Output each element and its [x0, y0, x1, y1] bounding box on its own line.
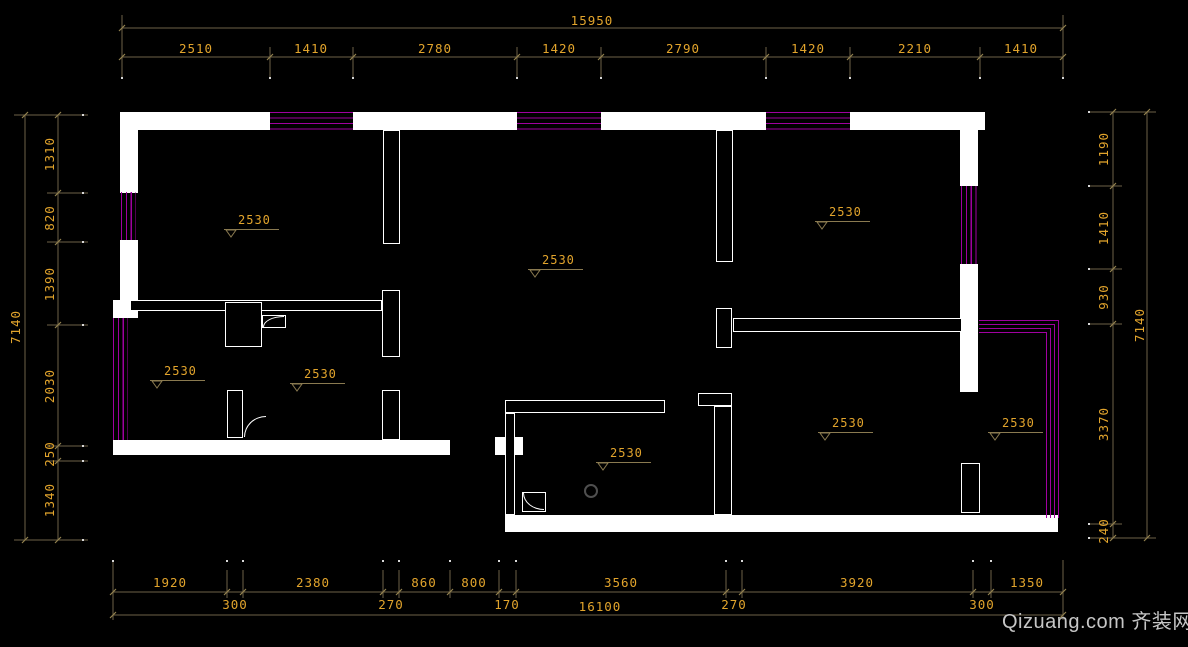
wall-right-mid	[960, 264, 978, 392]
dim-left-seg-1: 820	[42, 205, 57, 231]
dim-top-seg-1: 1410	[294, 41, 328, 56]
level-triangle-icon	[529, 269, 541, 278]
dim-right-seg-2: 930	[1096, 284, 1111, 310]
level-value: 2530	[164, 364, 197, 378]
level-marker-1: 2530	[224, 213, 279, 230]
wall-top-3	[601, 112, 766, 130]
dim-bottom-minor-4: 300	[969, 597, 995, 612]
dim-left-seg-2: 1390	[42, 267, 57, 301]
dim-bottom-minor-1: 270	[378, 597, 404, 612]
dim-dots-right	[1088, 112, 1090, 538]
dim-ticks-left	[22, 112, 61, 543]
dim-left-seg-4: 250	[42, 441, 57, 467]
dim-bottom-minor-0: 300	[222, 597, 248, 612]
window-left-1	[121, 192, 136, 240]
dim-right-seg-0: 1190	[1096, 132, 1111, 166]
wall-top-2	[353, 112, 517, 130]
dim-right-seg-1: 1410	[1096, 211, 1111, 245]
wall-right-lower	[961, 463, 980, 513]
level-marker-8: 2530	[988, 416, 1043, 433]
dim-top-overall: 15950	[571, 13, 614, 28]
wall-left-mid	[120, 240, 138, 302]
dim-left-seg-5: 1340	[42, 483, 57, 517]
level-triangle-icon	[819, 432, 831, 441]
inner-wall-vert-1	[383, 130, 400, 244]
bath-wall-left	[505, 413, 515, 515]
dim-bottom-major-5: 3920	[840, 575, 874, 590]
level-value: 2530	[829, 205, 862, 219]
dim-bottom-minor-2: 170	[494, 597, 520, 612]
dim-left-overall: 7140	[8, 310, 23, 344]
dim-top-seg-4: 2790	[666, 41, 700, 56]
wall-right-upper	[960, 113, 978, 186]
floor-plan-canvas: 15950 2510 1410 2780 1420 2790 1420 2210…	[0, 0, 1188, 647]
dim-bottom-overall: 16100	[579, 599, 622, 614]
level-value: 2530	[1002, 416, 1035, 430]
level-triangle-icon	[989, 432, 1001, 441]
dim-bottom-major-2: 860	[411, 575, 437, 590]
dim-bottom-major-3: 800	[461, 575, 487, 590]
watermark: Qizuang.com 齐装网	[1002, 605, 1188, 634]
dim-bottom-minor-3: 270	[721, 597, 747, 612]
dim-top-seg-0: 2510	[179, 41, 213, 56]
inner-wall-vert-2	[716, 130, 733, 262]
window-left-2	[113, 318, 128, 440]
dim-top-seg-3: 1420	[542, 41, 576, 56]
level-triangle-icon	[151, 380, 163, 389]
dim-bottom-major-1: 2380	[296, 575, 330, 590]
dim-bottom-major-6: 1350	[1010, 575, 1044, 590]
inner-wall-vert-3	[382, 290, 400, 357]
level-value: 2530	[238, 213, 271, 227]
dim-right-seg-4: 240	[1096, 518, 1111, 544]
dim-top-seg-6: 2210	[898, 41, 932, 56]
level-marker-7: 2530	[818, 416, 873, 433]
wall-top-1	[120, 112, 270, 130]
dim-bottom-major-0: 1920	[153, 575, 187, 590]
dim-right-overall: 7140	[1132, 308, 1147, 342]
dim-right-seg-3: 3370	[1096, 407, 1111, 441]
inner-wall-vert-4	[382, 390, 400, 440]
level-triangle-icon	[225, 229, 237, 238]
inner-wall-tee	[716, 308, 732, 348]
level-marker-4: 2530	[150, 364, 205, 381]
closet-niche	[225, 302, 262, 347]
level-marker-3: 2530	[815, 205, 870, 222]
level-triangle-icon	[291, 383, 303, 392]
dim-bottom-major-4: 3560	[604, 575, 638, 590]
window-right-1	[961, 186, 977, 264]
level-marker-5: 2530	[290, 367, 345, 384]
bath-wall-top	[505, 400, 665, 413]
window-top-3	[766, 112, 850, 130]
dim-top-seg-2: 2780	[418, 41, 452, 56]
inner-wall-horiz-right	[733, 318, 962, 332]
dim-top-seg-5: 1420	[791, 41, 825, 56]
dim-left-seg-3: 2030	[42, 369, 57, 403]
window-top-2	[517, 112, 601, 130]
dim-top-seg-7: 1410	[1004, 41, 1038, 56]
dim-left-seg-0: 1310	[42, 137, 57, 171]
window-top-1	[270, 112, 353, 130]
bath-wall-right-top	[698, 393, 732, 406]
level-marker-2: 2530	[528, 253, 583, 270]
level-marker-6: 2530	[596, 446, 651, 463]
dim-dots-left	[82, 115, 84, 540]
floor-drain-icon	[584, 484, 598, 498]
level-value: 2530	[304, 367, 337, 381]
level-value: 2530	[610, 446, 643, 460]
inner-wall-bar-2	[227, 390, 243, 438]
wall-bottom-main	[505, 515, 1058, 532]
level-triangle-icon	[597, 462, 609, 471]
wall-left-upper	[120, 112, 138, 193]
level-value: 2530	[542, 253, 575, 267]
dim-lines-left	[14, 115, 88, 540]
level-value: 2530	[832, 416, 865, 430]
level-triangle-icon	[816, 221, 828, 230]
wall-bottom-left	[113, 440, 450, 455]
bath-wall-right	[714, 406, 732, 515]
